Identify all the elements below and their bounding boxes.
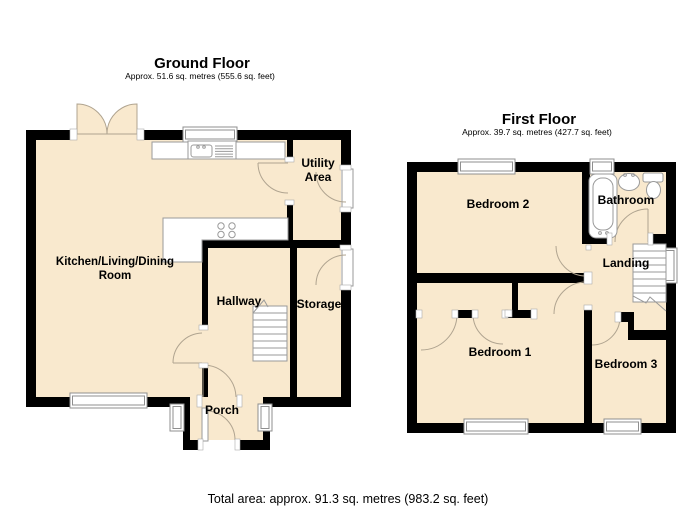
room-label-bedroom1: Bedroom 1 [469,345,532,359]
window-icon [258,404,272,431]
room-label-utility-line2: Area [305,170,332,184]
room-label-bathroom: Bathroom [598,193,655,207]
room-label-bedroom3: Bedroom 3 [595,357,658,371]
basin-icon [619,174,640,191]
room-label-hallway: Hallway [217,294,262,308]
first-floor-plan: First Floor Approx. 39.7 sq. metres (427… [407,111,677,434]
floorplan-page: Ground Floor Approx. 51.6 sq. metres (55… [0,0,700,509]
window-icon [458,159,515,174]
stairs-icon [253,300,287,361]
first-floor-title: First Floor [502,111,576,128]
window-icon [590,159,614,174]
total-area-text: Total area: approx. 91.3 sq. metres (983… [208,492,489,506]
stairs-icon [633,244,666,311]
ground-floor-title: Ground Floor [154,55,250,72]
window-icon [170,404,184,431]
french-doors-icon [77,104,137,134]
bathroom-door-opening [612,234,648,244]
room-label-bedroom2: Bedroom 2 [467,197,530,211]
window-icon [604,419,641,434]
window-icon [464,419,528,434]
storage-door-leaf [342,249,353,286]
room-label-kitchen-line2: Room [99,270,132,282]
first-floor-area [417,172,666,423]
room-label-utility-line1: Utility [301,156,335,170]
room-label-landing: Landing [603,256,650,270]
floorplan-drawing: Ground Floor Approx. 51.6 sq. metres (55… [0,0,700,509]
window-icon [70,393,147,408]
ground-floor-area-text: Approx. 51.6 sq. metres (555.6 sq. feet) [125,71,275,81]
kitchen-sink-icon [152,141,285,159]
room-label-storage: Storage [297,297,342,311]
window-icon [183,127,237,142]
room-label-kitchen-line1: Kitchen/Living/Dining [56,256,174,268]
ground-floor-plan: Ground Floor Approx. 51.6 sq. metres (55… [26,55,353,450]
first-floor-area-text: Approx. 39.7 sq. metres (427.7 sq. feet) [462,127,612,137]
room-label-porch: Porch [205,403,239,417]
